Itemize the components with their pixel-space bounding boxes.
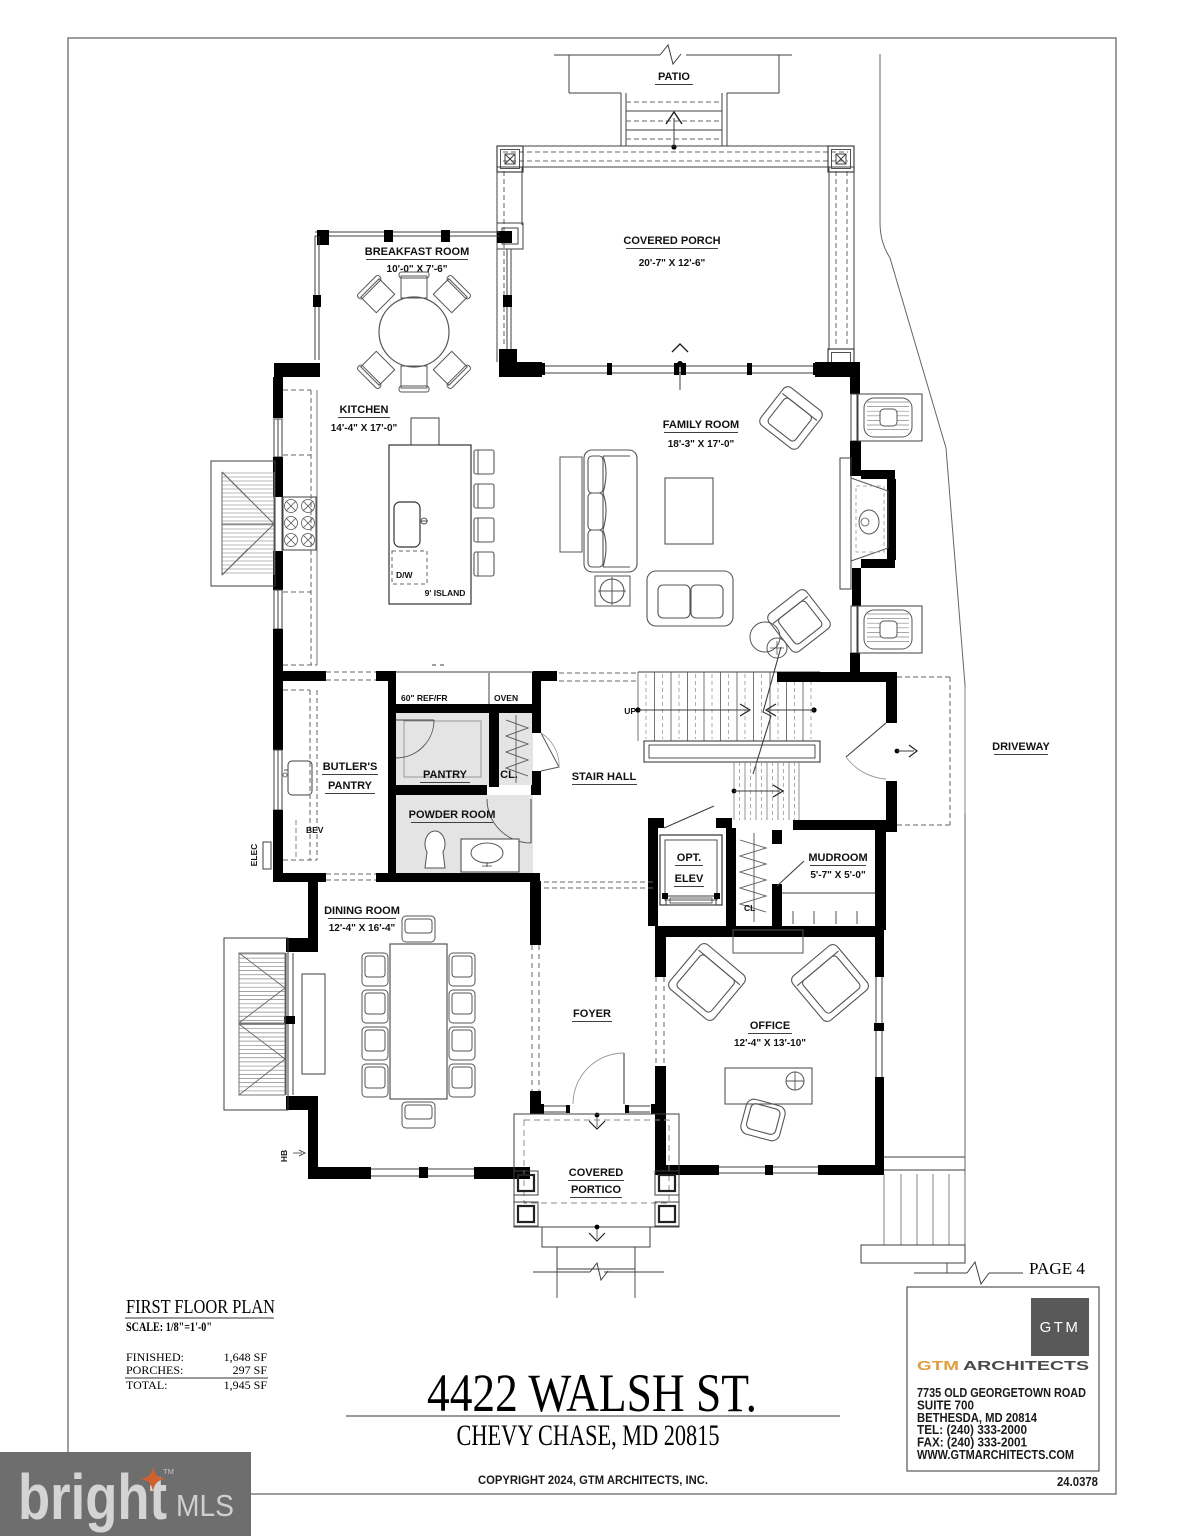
svg-text:COPYRIGHT 2024, GTM ARCHITECTS: COPYRIGHT 2024, GTM ARCHITECTS, INC. [478, 1473, 708, 1487]
svg-text:DINING ROOM: DINING ROOM [324, 905, 400, 917]
svg-text:TOTAL:: TOTAL: [126, 1378, 167, 1392]
svg-text:CHEVY CHASE, MD 20815: CHEVY CHASE, MD 20815 [457, 1419, 720, 1452]
svg-text:OPT.: OPT. [677, 852, 701, 864]
svg-text:UP: UP [624, 706, 636, 716]
svg-text:10'-0" X 7'-6": 10'-0" X 7'-6" [387, 264, 448, 275]
svg-text:HB: HB [279, 1150, 289, 1162]
svg-text:CL: CL [744, 903, 755, 913]
svg-text:GTM: GTM [1040, 1319, 1081, 1336]
svg-text:PORTICO: PORTICO [571, 1184, 622, 1196]
svg-text:PATIO: PATIO [658, 71, 690, 83]
svg-text:BREAKFAST ROOM: BREAKFAST ROOM [365, 246, 470, 258]
svg-text:TM: TM [163, 1467, 174, 1476]
svg-text:MUDROOM: MUDROOM [808, 852, 867, 864]
svg-text:14'-4" X 17'-0": 14'-4" X 17'-0" [331, 423, 398, 434]
svg-text:BEV: BEV [306, 825, 324, 835]
svg-text:MLS: MLS [176, 1488, 234, 1523]
svg-text:60" REF/FR: 60" REF/FR [401, 693, 448, 703]
svg-text:D/W: D/W [396, 570, 414, 580]
svg-text:POWDER ROOM: POWDER ROOM [409, 809, 496, 821]
svg-text:COVERED PORCH: COVERED PORCH [623, 235, 720, 247]
svg-text:4422 WALSH ST.: 4422 WALSH ST. [427, 1363, 757, 1423]
svg-text:20'-7" X 12'-6": 20'-7" X 12'-6" [639, 258, 706, 269]
svg-text:CL.: CL. [500, 769, 518, 781]
svg-text:PANTRY: PANTRY [423, 769, 468, 781]
svg-text:12'-4" X 13'-10": 12'-4" X 13'-10" [734, 1038, 806, 1049]
svg-text:GTM: GTM [917, 1358, 959, 1373]
svg-text:1,648 SF: 1,648 SF [224, 1350, 268, 1364]
svg-text:COVERED: COVERED [569, 1167, 623, 1179]
svg-text:DRIVEWAY: DRIVEWAY [992, 741, 1050, 753]
svg-text:KITCHEN: KITCHEN [340, 404, 389, 416]
svg-text:24.0378: 24.0378 [1057, 1474, 1098, 1489]
svg-text:BUTLER'S: BUTLER'S [323, 761, 378, 773]
svg-text:FAMILY ROOM: FAMILY ROOM [663, 419, 739, 431]
svg-text:ELEC: ELEC [249, 844, 259, 867]
svg-text:SCALE: 1/8"=1'-0": SCALE: 1/8"=1'-0" [126, 1320, 212, 1334]
svg-text:WWW.GTMARCHITECTS.COM: WWW.GTMARCHITECTS.COM [917, 1448, 1074, 1462]
svg-text:FIRST FLOOR PLAN: FIRST FLOOR PLAN [126, 1296, 275, 1318]
svg-text:ARCHITECTS: ARCHITECTS [963, 1358, 1089, 1373]
svg-text:PORCHES:: PORCHES: [126, 1363, 183, 1377]
svg-text:PANTRY: PANTRY [328, 780, 373, 792]
svg-text:STAIR HALL: STAIR HALL [572, 771, 637, 783]
svg-text:FOYER: FOYER [573, 1008, 611, 1020]
svg-text:9' ISLAND: 9' ISLAND [425, 588, 466, 598]
svg-text:PAGE 4: PAGE 4 [1029, 1259, 1085, 1278]
svg-text:5'-7" X 5'-0": 5'-7" X 5'-0" [810, 870, 866, 881]
svg-text:297 SF: 297 SF [233, 1363, 268, 1377]
svg-text:bright: bright [18, 1461, 167, 1533]
svg-text:OVEN: OVEN [494, 693, 518, 703]
svg-text:18'-3" X 17'-0": 18'-3" X 17'-0" [668, 439, 735, 450]
svg-text:12'-4" X 16'-4": 12'-4" X 16'-4" [329, 923, 396, 934]
svg-text:OFFICE: OFFICE [750, 1020, 790, 1032]
svg-text:FINISHED:: FINISHED: [126, 1350, 184, 1364]
svg-text:1,945 SF: 1,945 SF [224, 1378, 268, 1392]
svg-text:ELEV: ELEV [675, 873, 704, 885]
